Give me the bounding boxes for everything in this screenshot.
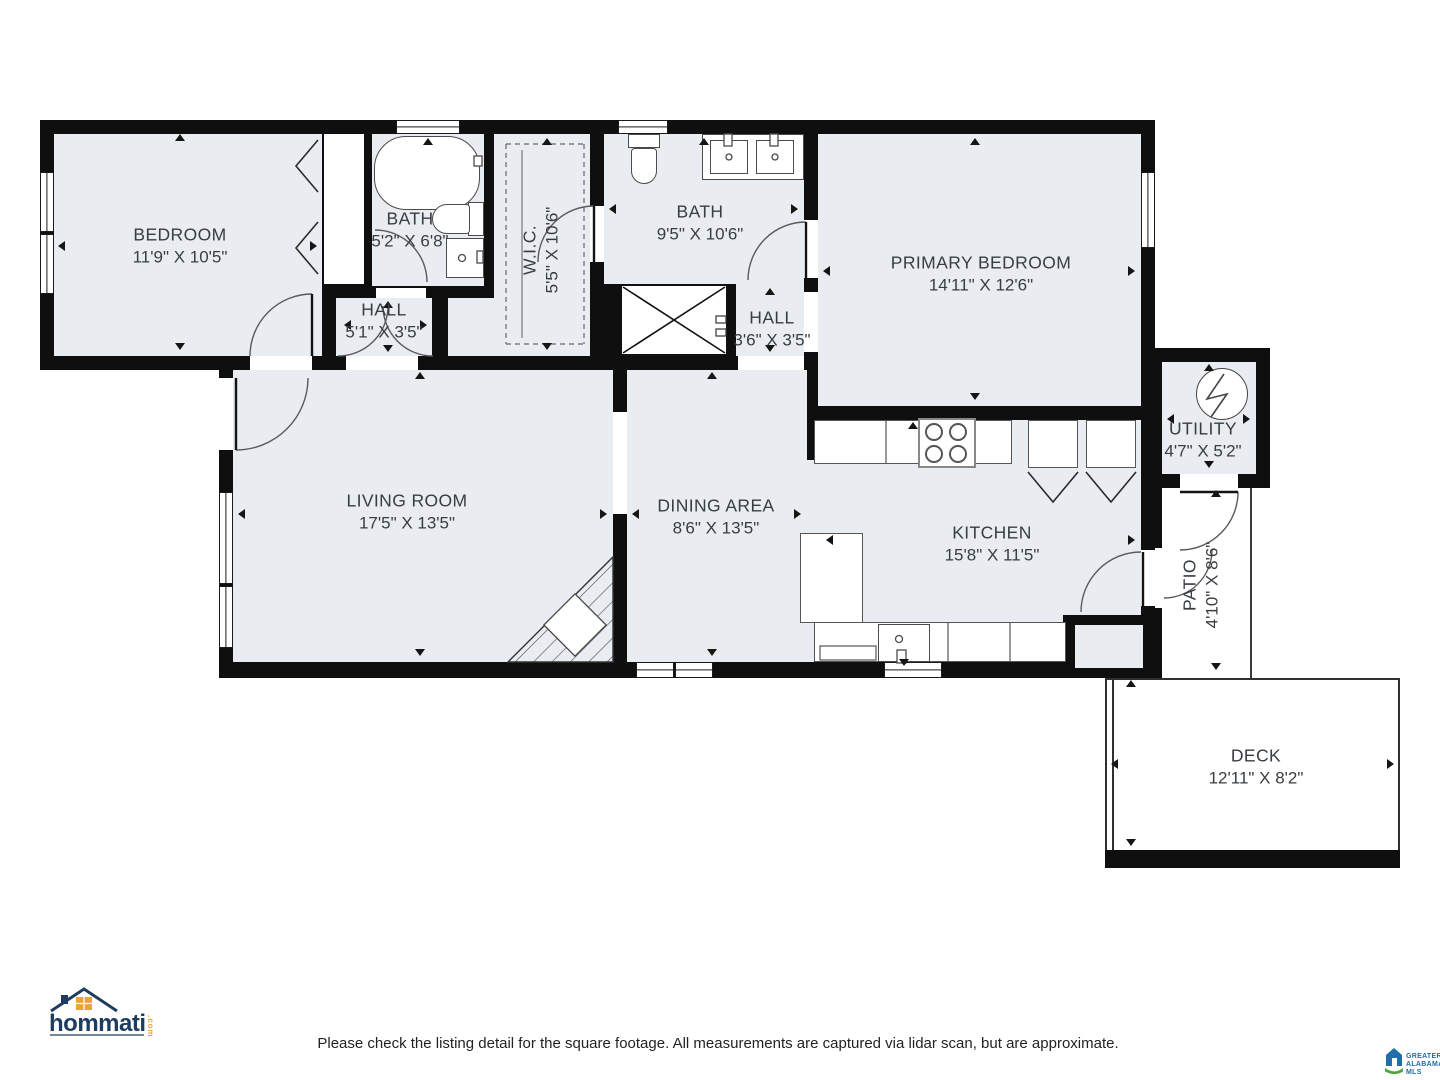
bedroom-closet [324,134,364,284]
window [219,586,233,648]
room-label-deck: DECK12'11" X 8'2" [1209,745,1304,790]
shower-icon [620,284,728,356]
room-label-dining: DINING AREA8'6" X 13'5" [657,495,774,540]
window [675,662,713,678]
hall-1-extension [448,298,494,356]
vanity-sink-icon [756,140,794,174]
mls-logo: GREATER ALABAMA MLS [1384,1046,1440,1080]
pantry-closet [1028,420,1078,468]
room-label-bath-2: BATH9'5" X 10'6" [657,201,744,246]
mls-text-line3: MLS [1406,1069,1422,1076]
window [1141,172,1155,248]
window [396,120,460,134]
hommati-wordmark: hommati [49,1010,146,1037]
mls-text-line1: GREATER [1406,1053,1440,1060]
water-heater-icon [1196,368,1248,420]
window [40,172,54,232]
mls-text-line2: ALABAMA [1406,1061,1440,1068]
window [636,662,674,678]
window [40,234,54,294]
hommati-logo: hommati .com [48,984,172,1042]
floor-plan-page: { "rooms": { "bedroom": {"name": "BEDROO… [0,0,1440,1080]
disclaimer-text: Please check the listing detail for the … [317,1035,1118,1052]
room-label-utility: UTILITY4'7" X 5'2" [1164,418,1241,463]
room-label-primary-bedroom: PRIMARY BEDROOM14'11" X 12'6" [891,252,1071,297]
window [884,662,942,678]
room-label-hall-2: HALL3'6" X 3'5" [733,307,810,352]
bathroom-sink-icon [446,238,484,278]
hommati-tld: .com [146,1015,155,1038]
hommati-house-icon [51,989,117,1011]
toilet-tank-icon [468,202,484,236]
deck-edge [1105,850,1400,868]
room-label-living: LIVING ROOM17'5" X 13'5" [346,490,467,535]
kitchen-corner-closet [1075,625,1143,668]
window [618,120,668,134]
room-label-wic: W.I.C.5'5" X 10'6" [519,207,564,294]
vanity-sink-icon [710,140,748,174]
toilet-tank-icon [628,134,660,148]
pantry-closet [1086,420,1136,468]
bathtub-icon [374,136,480,210]
kitchen-sink-icon [878,624,930,662]
room-label-bath-1: BATH5'2" X 6'8" [371,208,448,253]
mls-house-icon [1385,1048,1403,1074]
room-label-hall-1: HALL5'1" X 3'5" [345,299,422,344]
window [219,492,233,584]
room-label-patio: PATIO4'10" X 8'6" [1179,542,1224,629]
toilet-bowl-icon [631,148,657,184]
room-label-bedroom: BEDROOM11'9" X 10'5" [133,224,228,269]
stove-icon [918,418,976,468]
kitchen-counter-bottom [814,622,1066,662]
room-label-kitchen: KITCHEN15'8" X 11'5" [945,522,1040,567]
island-counter [800,533,863,623]
